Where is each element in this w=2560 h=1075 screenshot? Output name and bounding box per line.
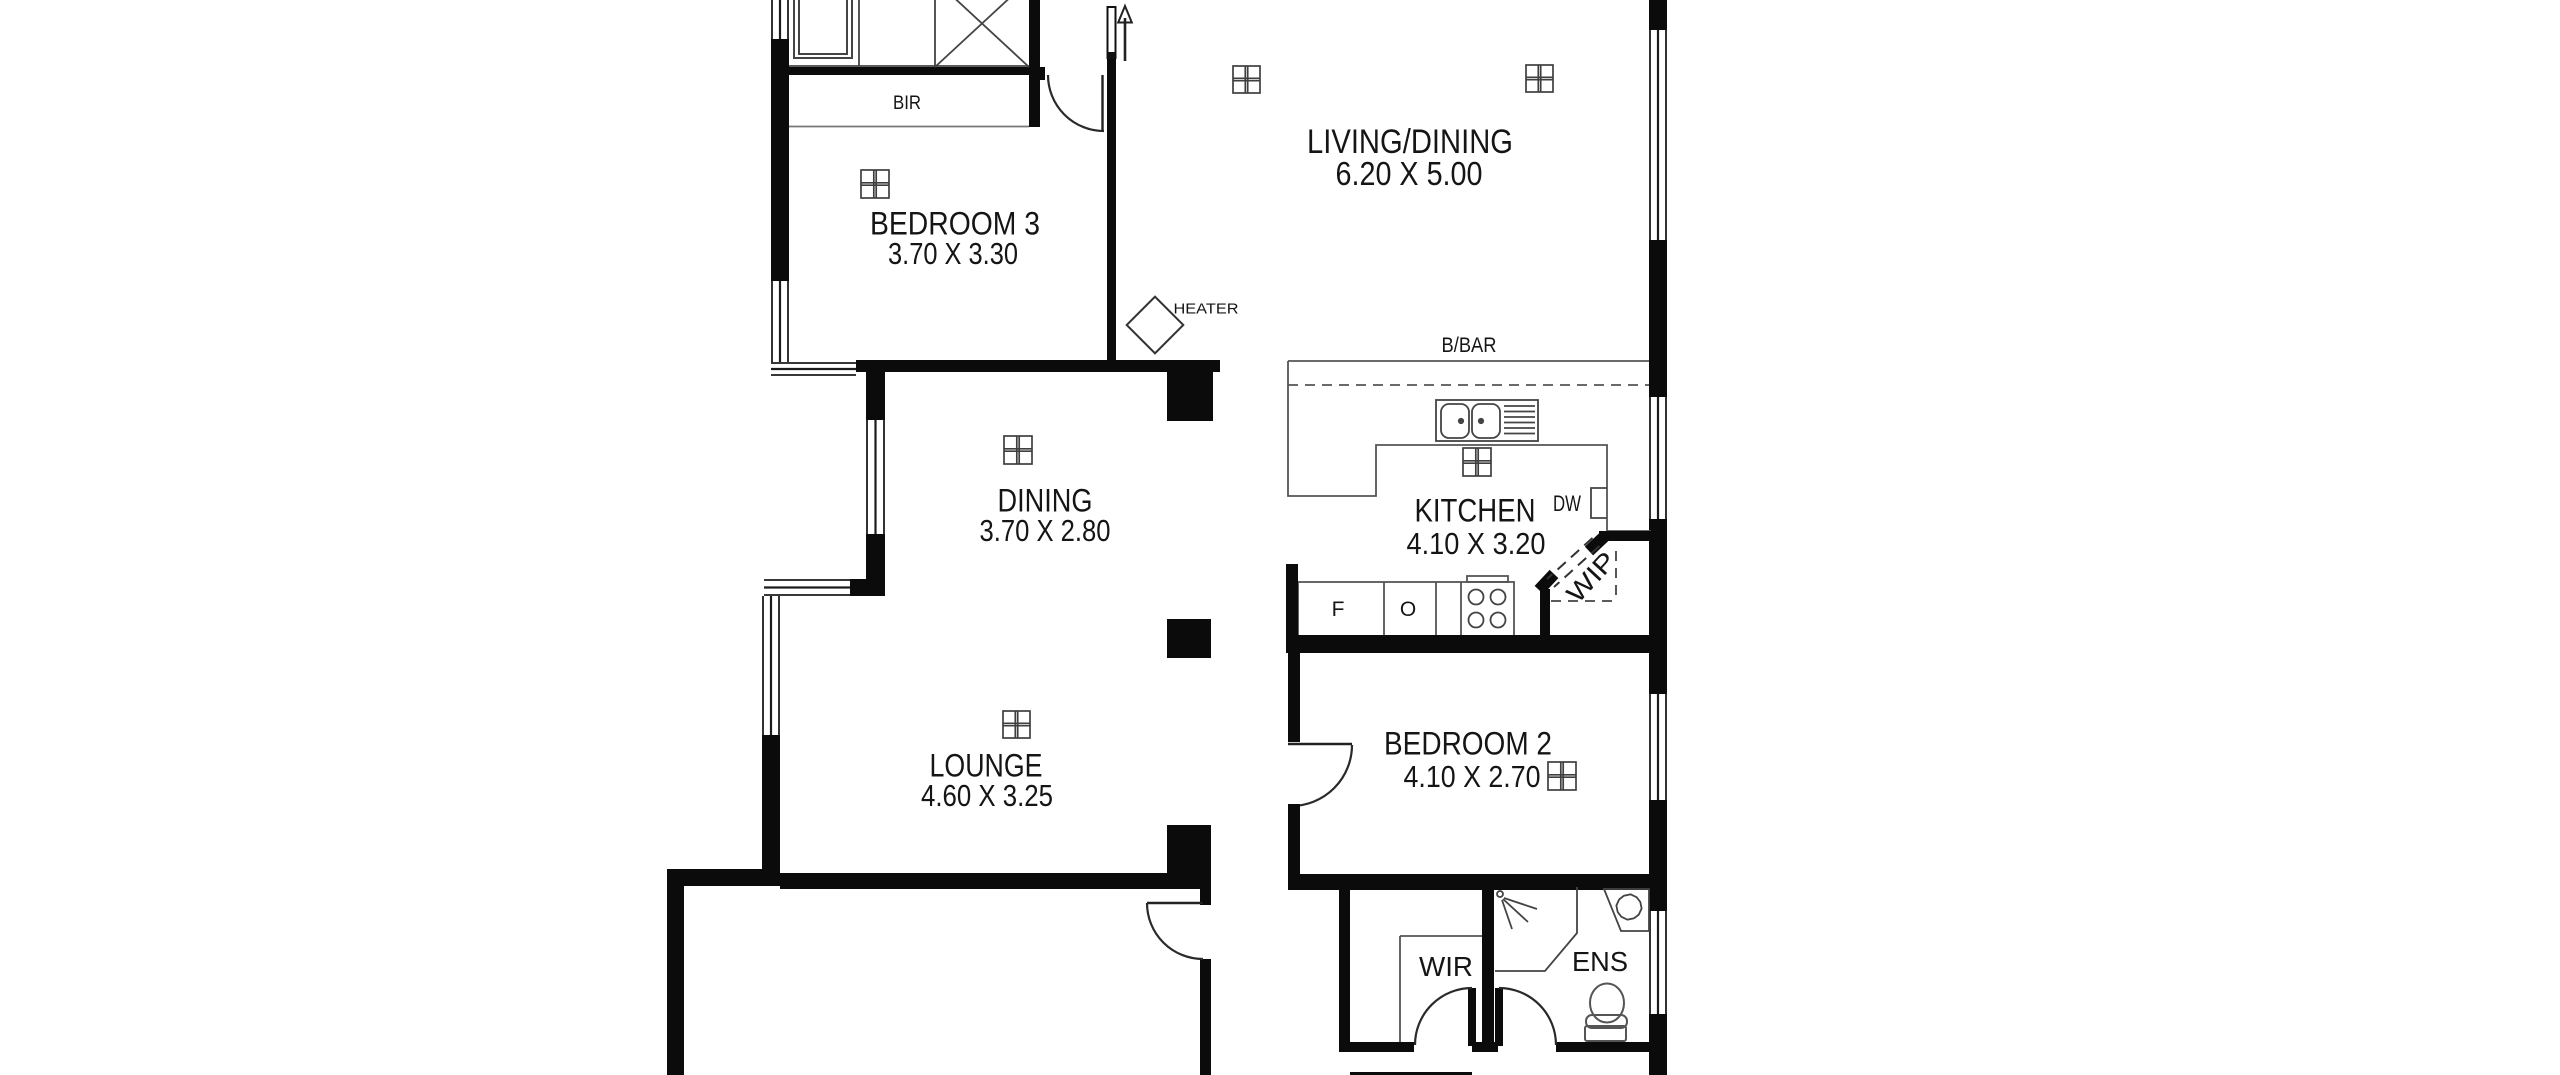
svg-text:6.20 X 5.00: 6.20 X 5.00 bbox=[1336, 155, 1483, 192]
svg-text:4.10 X 3.20: 4.10 X 3.20 bbox=[1407, 526, 1546, 561]
svg-text:HEATER: HEATER bbox=[1174, 301, 1239, 318]
svg-text:WIR: WIR bbox=[1419, 951, 1473, 982]
svg-text:4.60 X 3.25: 4.60 X 3.25 bbox=[921, 778, 1053, 813]
svg-text:3.70 X 3.30: 3.70 X 3.30 bbox=[888, 236, 1018, 271]
svg-text:3.70 X 2.80: 3.70 X 2.80 bbox=[980, 513, 1111, 548]
svg-text:BIR: BIR bbox=[893, 93, 921, 114]
svg-text:4.10 X 2.70: 4.10 X 2.70 bbox=[1404, 759, 1541, 794]
svg-text:F: F bbox=[1332, 598, 1345, 621]
svg-text:ENS: ENS bbox=[1572, 946, 1628, 977]
svg-text:KITCHEN: KITCHEN bbox=[1415, 493, 1536, 529]
svg-text:BEDROOM 2: BEDROOM 2 bbox=[1384, 726, 1552, 762]
svg-text:O: O bbox=[1400, 598, 1416, 621]
svg-text:DW: DW bbox=[1553, 491, 1581, 516]
svg-text:B/BAR: B/BAR bbox=[1442, 334, 1497, 357]
